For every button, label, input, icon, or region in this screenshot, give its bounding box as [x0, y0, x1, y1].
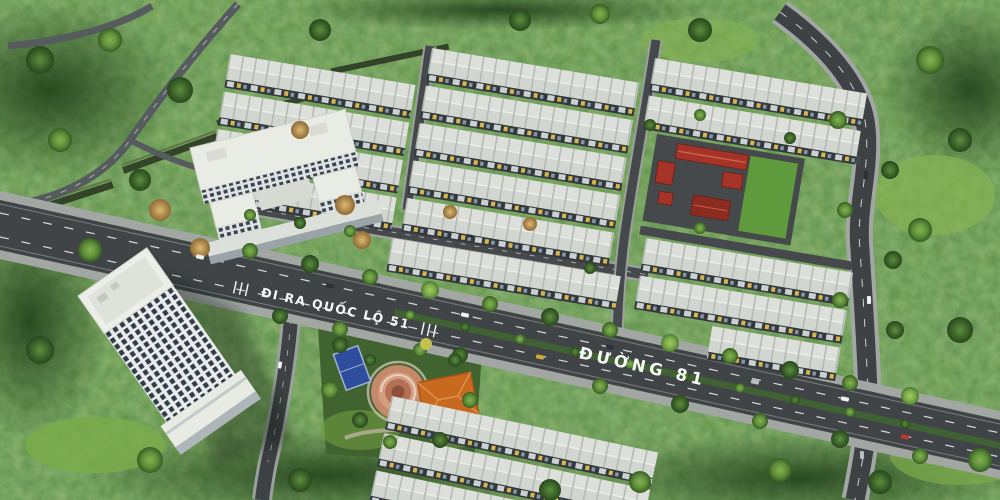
aerial-scene: ||| ĐI RA QUỐC LỘ 51 ||| ĐƯỜNG 81: [0, 0, 1000, 500]
rowhouse-block-northcenter: [401, 48, 639, 266]
masterplan-render: ||| ĐI RA QUỐC LỘ 51 ||| ĐƯỜNG 81: [0, 0, 1000, 500]
